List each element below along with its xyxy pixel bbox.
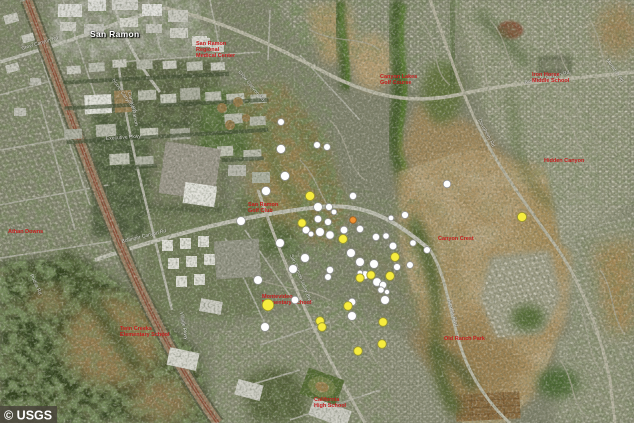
svg-text:San Ramon: San Ramon — [90, 29, 139, 39]
svg-text:© USGS: © USGS — [4, 409, 52, 423]
svg-text:Elementary School: Elementary School — [120, 332, 170, 338]
svg-text:Hidden Canyon: Hidden Canyon — [544, 158, 585, 164]
svg-text:Old Ranch Park: Old Ranch Park — [444, 336, 486, 342]
svg-text:Medical Center: Medical Center — [196, 53, 236, 59]
svg-text:Golf Club: Golf Club — [248, 208, 273, 214]
svg-text:Athan Downs: Athan Downs — [8, 229, 43, 235]
svg-text:High School: High School — [314, 403, 347, 409]
svg-text:Golf Course: Golf Course — [380, 80, 411, 86]
svg-text:Middle School: Middle School — [532, 78, 570, 84]
svg-text:Canyon Crest: Canyon Crest — [438, 236, 474, 242]
